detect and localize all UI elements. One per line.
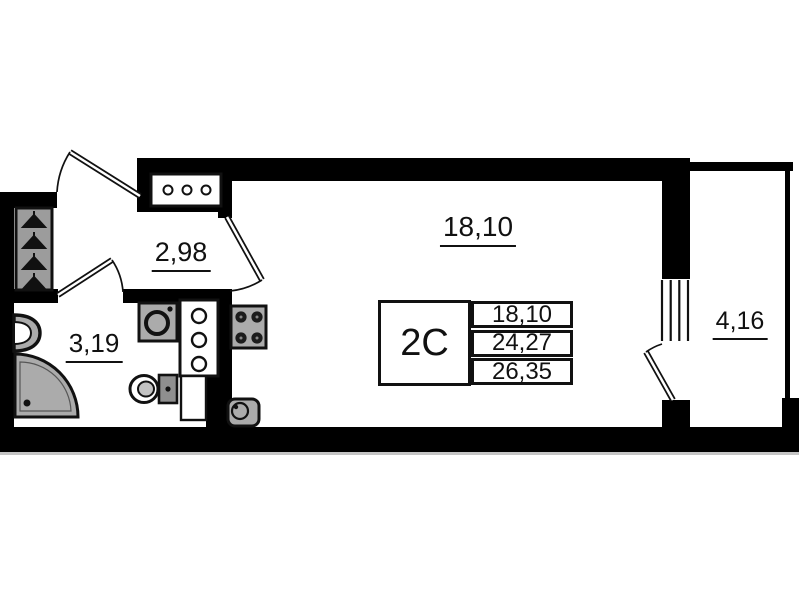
bathroom-door-icon: [58, 260, 123, 295]
wall-room-right-top: [662, 158, 690, 280]
wall-left: [0, 192, 14, 452]
wall-entry-top: [0, 192, 57, 208]
unit-area-row: 26,35: [471, 358, 573, 385]
unit-area-row: 18,10: [471, 301, 573, 328]
electrical-panel-icon: [151, 174, 221, 206]
balcony-window-icon: [660, 279, 690, 342]
entrance-door-icon: [57, 152, 140, 196]
balcony-area-value: 4,16: [713, 307, 768, 340]
bathroom-area-value: 3,19: [66, 328, 123, 363]
room-door-icon: [227, 217, 262, 291]
unit-area-rows: 18,10 24,27 26,35: [471, 300, 573, 386]
wall-bottom-shadow: [0, 452, 799, 455]
hallway-area-value: 2,98: [152, 237, 211, 272]
floor-plan: 2,98 3,19 18,10 4,16 2С 18,10 24,27 26,3…: [0, 0, 799, 600]
room-label-balcony: 4,16: [713, 307, 768, 340]
wall-balcony-corner-block: [782, 398, 799, 427]
unit-area-row: 24,27: [471, 330, 573, 357]
wall-bottom: [0, 427, 799, 452]
toilet-icon: [130, 375, 177, 403]
wall-balcony-right: [785, 165, 790, 401]
wardrobe-icon: [16, 208, 52, 290]
room-label-bathroom: 3,19: [66, 328, 123, 363]
wall-kitchen-block: [206, 377, 230, 427]
room-label-living-room: 18,10: [440, 211, 516, 247]
shower-icon: [15, 354, 78, 417]
washing-machine-icon: [139, 303, 177, 341]
wall-balcony-top: [690, 162, 793, 171]
unit-info-table: 2С 18,10 24,27 26,35: [378, 300, 573, 386]
balcony-door-icon: [646, 344, 673, 400]
unit-type-cell: 2С: [378, 300, 471, 386]
room-label-hallway: 2,98: [152, 237, 211, 272]
cabinet-lower-box: [181, 376, 206, 420]
kitchen-sink-icon: [228, 399, 259, 426]
wall-room-right-bottom: [662, 400, 690, 427]
stove-icon: [231, 306, 266, 348]
living-room-area-value: 18,10: [440, 211, 516, 247]
wash-basin-icon: [14, 315, 40, 351]
